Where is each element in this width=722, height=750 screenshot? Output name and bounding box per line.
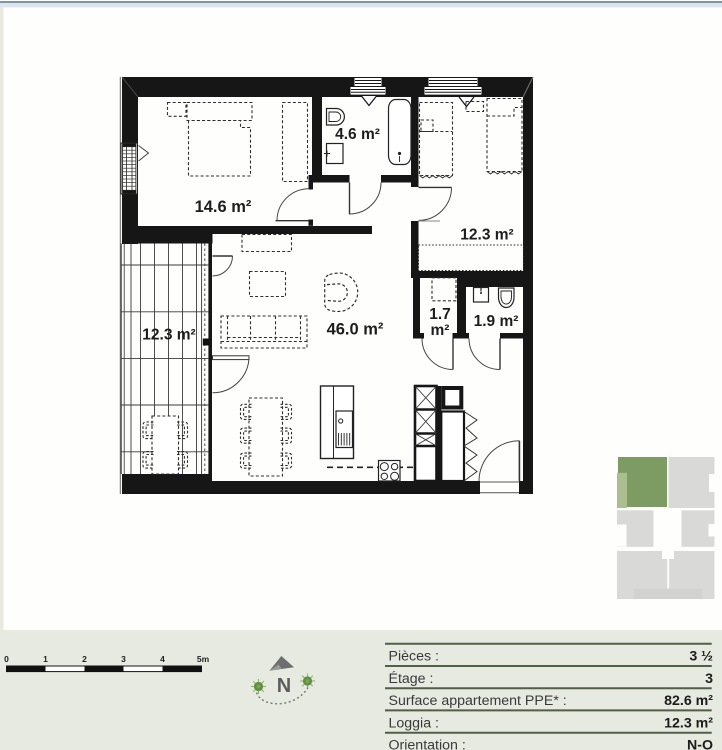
- svg-text:Pièces :: Pièces :: [389, 649, 439, 665]
- svg-text:46.0 m²: 46.0 m²: [327, 321, 384, 339]
- svg-text:1.9 m²: 1.9 m²: [474, 313, 519, 330]
- svg-text:12.3 m²: 12.3 m²: [664, 715, 713, 731]
- svg-text:3: 3: [705, 671, 713, 687]
- svg-text:14.6 m²: 14.6 m²: [195, 198, 252, 216]
- svg-text:2: 2: [82, 654, 87, 664]
- svg-text:12.3 m²: 12.3 m²: [142, 327, 195, 344]
- svg-text:Loggia :: Loggia :: [389, 715, 440, 731]
- svg-text:Étage :: Étage :: [389, 670, 434, 687]
- svg-text:12.3 m²: 12.3 m²: [460, 227, 513, 244]
- svg-text:1.7: 1.7: [429, 306, 451, 323]
- svg-text:N-O: N-O: [687, 738, 713, 750]
- svg-text:3 ½: 3 ½: [689, 649, 713, 665]
- svg-text:N: N: [277, 675, 291, 697]
- svg-text:1: 1: [43, 654, 48, 664]
- svg-text:m²: m²: [431, 322, 450, 339]
- svg-text:5m: 5m: [197, 654, 210, 664]
- svg-text:Orientation :: Orientation :: [389, 738, 466, 750]
- svg-text:82.6 m²: 82.6 m²: [664, 693, 713, 709]
- svg-text:Surface appartement PPE* :: Surface appartement PPE* :: [389, 693, 567, 709]
- svg-text:0: 0: [4, 654, 9, 664]
- svg-text:3: 3: [121, 654, 126, 664]
- svg-text:4: 4: [160, 654, 165, 664]
- svg-text:4.6 m²: 4.6 m²: [335, 126, 380, 143]
